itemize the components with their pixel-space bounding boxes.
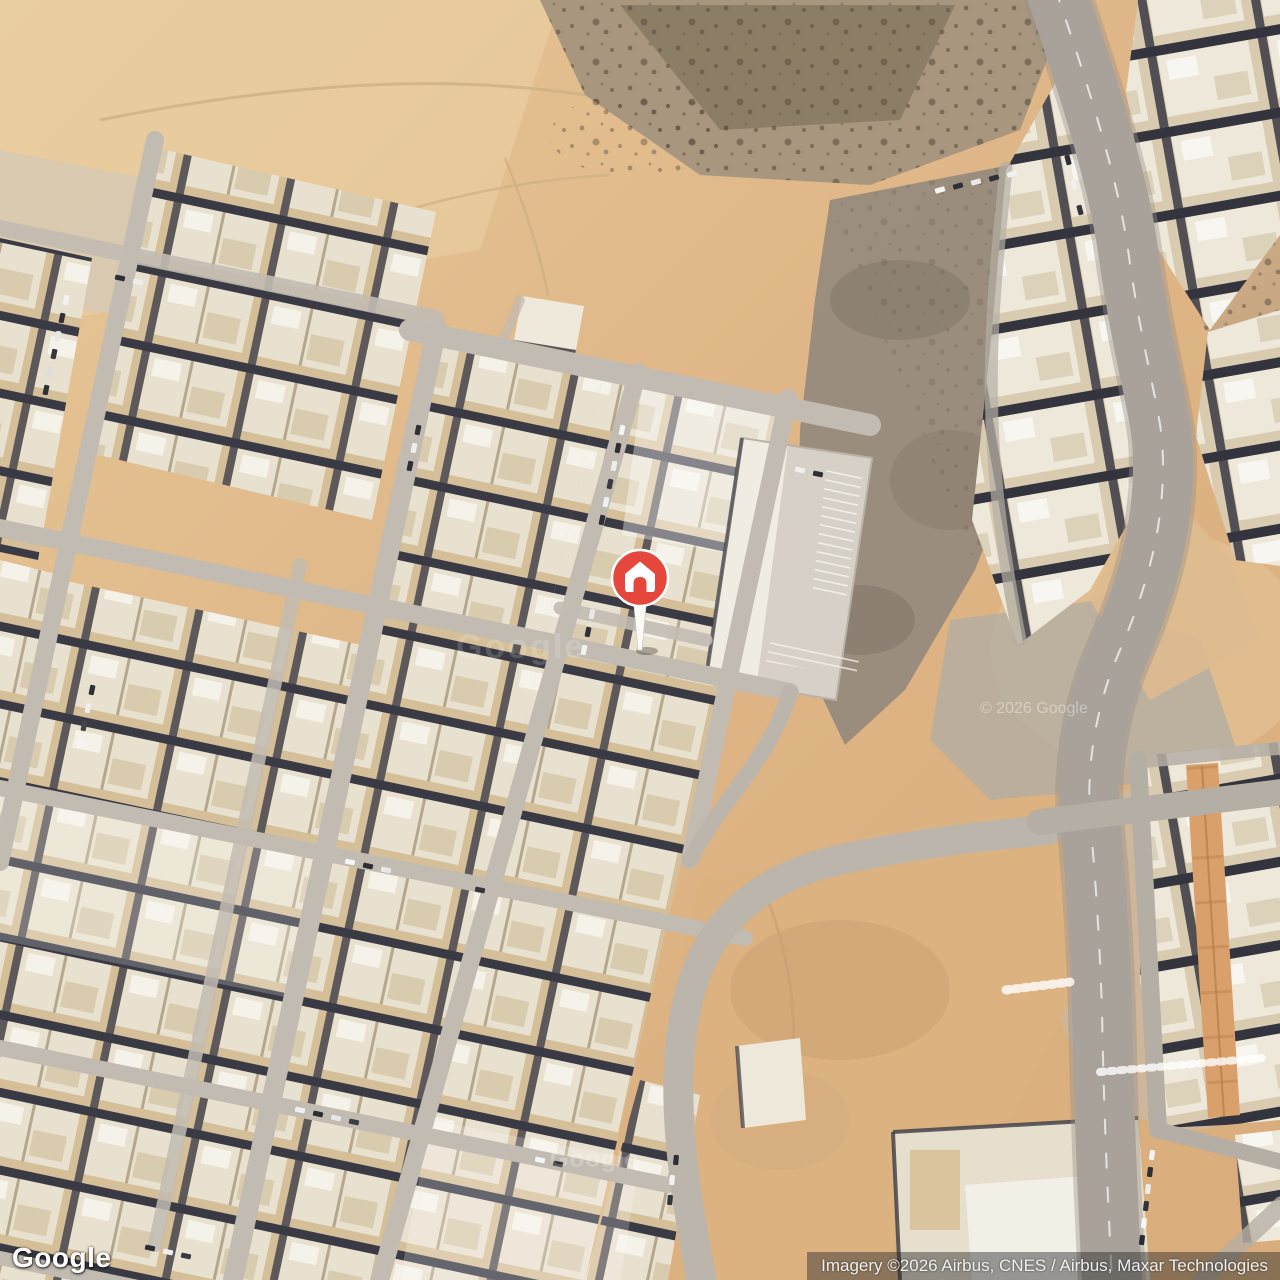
imagery-attribution-text: Imagery ©2026 Airbus, CNES / Airbus, Max… — [821, 1256, 1268, 1275]
attribution-bar: Imagery ©2026 Airbus, CNES / Airbus, Max… — [807, 1252, 1280, 1280]
satellite-imagery — [0, 0, 1280, 1280]
map-viewport[interactable]: Google Google © 2026 Google Google Image… — [0, 0, 1280, 1280]
google-logo[interactable]: Google — [12, 1242, 111, 1274]
